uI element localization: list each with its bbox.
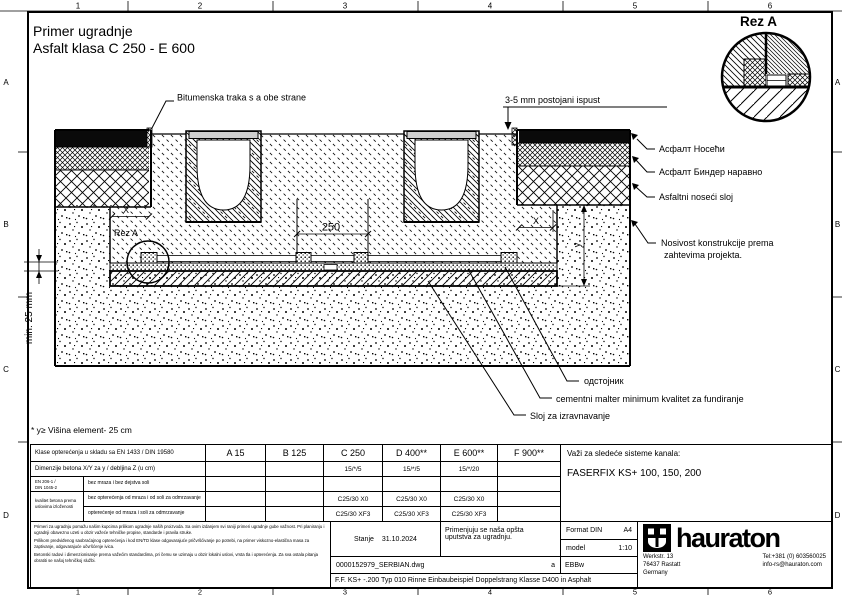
class-header-f900: F 900** [497, 444, 561, 462]
format-label: Format DIN [566, 527, 602, 534]
table-cell [497, 491, 561, 507]
ruler-col: 5 [633, 588, 637, 595]
address-line2: 76437 Rastatt [643, 561, 680, 569]
systems-panel: Važi za sledeće sisteme kanala: FASERFIX… [560, 444, 832, 522]
drawing-sheet: 1 2 3 4 5 6 1 2 3 4 5 6 A B C D A B C D … [0, 0, 842, 595]
status-label: Stanje [354, 536, 374, 543]
table-quality-label: kvalitet betona prema uslovima izloženos… [30, 491, 84, 522]
table-cell [497, 461, 561, 477]
scale-row: model 1:10 [560, 539, 638, 557]
table-row2-label: Dimenzije betona X/Y za y / debljina Z (… [30, 461, 206, 477]
asphalt-wearing-course [55, 130, 147, 147]
contact-email: info-rs@hauraton.com [762, 561, 826, 569]
table-row1-label: Klase opterećenja u skladu sa EN 1433 / … [30, 444, 206, 462]
quality-line1: kvalitet betona prema [35, 498, 79, 504]
table-cell [265, 491, 324, 507]
class-header-c250: C 250 [323, 444, 383, 462]
label-asphalt-base: Asfaltni noseći sloj [659, 192, 733, 202]
asphalt-base-layer [517, 166, 630, 205]
table-cell [497, 476, 561, 492]
detail-circle-rez-a: Rez A [722, 14, 810, 121]
label-malter: cementni malter minimum kvalitet za fund… [556, 394, 744, 404]
general-note-line1: Primenjuju se naša opšta [445, 527, 556, 534]
dim-y: y [572, 242, 582, 247]
scale-value: 1:10 [618, 545, 632, 552]
ruler-col: 1 [76, 2, 81, 11]
manufacturer-contact: Tel:+381 (0) 603560025 info-rs@hauraton.… [762, 553, 826, 577]
table-cell: 15/*/5 [382, 461, 441, 477]
label-odstojnik: одстојник [584, 376, 624, 386]
label-asphalt-wearing: Асфалт Носећи [659, 144, 725, 154]
ruler-col: 4 [488, 2, 493, 11]
format-value: A4 [623, 527, 632, 534]
ruler-col: 5 [633, 2, 638, 11]
table-cell [205, 461, 266, 477]
detail-title: Rez A [740, 14, 777, 29]
address-line1: Werkstr. 13 [643, 553, 680, 561]
scale-label: model [566, 545, 585, 552]
page-title-line2: Asfalt klasa C 250 - E 600 [33, 40, 195, 56]
page-title-line1: Primer ugradnje [33, 23, 133, 39]
ruler-row: B [835, 220, 840, 229]
table-cell: C25/30 X0 [382, 491, 441, 507]
norm-line2: DIN 1045-2 [35, 485, 79, 491]
channel-left [186, 131, 261, 222]
systems-value: FASERFIX KS+ 100, 150, 200 [567, 468, 825, 479]
class-header-a15: A 15 [205, 444, 266, 462]
table-cell [205, 506, 266, 522]
code-cell: EBBw [560, 556, 638, 574]
dim-250: 250 [322, 222, 340, 234]
table-norm-label: EN 206-1 / DIN 1045-2 [30, 476, 84, 492]
contact-phone: Tel:+381 (0) 603560025 [762, 553, 826, 561]
table-cell: C25/30 XF3 [323, 506, 383, 522]
ruler-row: D [3, 511, 9, 520]
class-header-e600: E 600** [440, 444, 498, 462]
label-ispust: 3-5 mm postojani ispust [505, 95, 601, 105]
address-line3: Germany [643, 569, 680, 577]
asphalt-binder-layer [517, 143, 630, 166]
ruler-col: 6 [768, 588, 772, 595]
ruler-row: C [835, 365, 841, 374]
asphalt-base-layer [55, 170, 149, 207]
table-cell [205, 491, 266, 507]
table-cell [497, 506, 561, 522]
table-cell [265, 461, 324, 477]
ruler-row: A [3, 78, 9, 87]
table-row4-label: bez opterećenja od mraza i od soli za od… [83, 491, 206, 507]
dim-x-left: X [123, 205, 129, 215]
table-cell [265, 476, 324, 492]
fine-print-p1: Primeri za ugradnju pomažu našim kupcima… [34, 524, 327, 535]
ruler-col: 2 [198, 588, 202, 595]
fine-print-p3: Betonski radovi i dimenzionisanje prema … [34, 552, 327, 563]
table-cell: C25/30 X0 [440, 491, 498, 507]
file-row: 0000152979_SERBIAN.dwg a [330, 556, 561, 574]
cross-section: 250 X X y min. 25 mm Rez A Bitumen [24, 93, 774, 436]
ruler-row: B [3, 220, 8, 229]
file-name: 0000152979_SERBIAN.dwg [336, 562, 424, 569]
table-cell [323, 476, 383, 492]
brand-wordmark: hauraton [676, 525, 780, 552]
general-note-line2: uputstva za ugradnju. [445, 534, 556, 541]
systems-heading: Važi za sledeće sisteme kanala: [567, 449, 825, 458]
hauraton-logo-icon [643, 524, 671, 552]
general-note: Primenjuju se naša opšta uputstva za ugr… [440, 521, 561, 557]
table-cell: 15/*/5 [323, 461, 383, 477]
table-cell: C25/30 XF3 [382, 506, 441, 522]
ruler-col: 1 [76, 588, 80, 595]
base-slab [110, 271, 557, 286]
manufacturer-block: hauraton Werkstr. 13 76437 Rastatt Germa… [637, 521, 832, 588]
manufacturer-address: Werkstr. 13 76437 Rastatt Germany [643, 553, 680, 577]
table-row3-label: bez mraza i bez dejstva soli [83, 476, 206, 492]
table-cell [205, 476, 266, 492]
description-row: F.F. KS+ -.200 Typ 010 Rinne Einbaubeisp… [330, 573, 638, 588]
channel-right [404, 131, 479, 222]
asphalt-wearing-course [519, 130, 630, 143]
grate-right [407, 132, 476, 139]
fine-print: Primeri za ugradnju pomažu našim kupcima… [30, 521, 331, 588]
table-cell: C25/30 X0 [323, 491, 383, 507]
quality-line2: uslovima izloženosti [35, 504, 79, 510]
table-cell: C25/30 XF3 [440, 506, 498, 522]
class-header-b125: B 125 [265, 444, 324, 462]
table-row5-label: opterećenje od mraza i soli za odmrzavan… [83, 506, 206, 522]
dim-min25: min. 25 mm [24, 292, 35, 344]
fine-print-p2: Prilikom predviđenog saobraćajnog optere… [34, 538, 327, 549]
dim-x-right: X [533, 216, 539, 226]
ruler-row: A [835, 78, 841, 87]
asphalt-binder-layer [55, 147, 149, 170]
label-nosivost-line2: zahtevima projekta. [664, 250, 742, 260]
asphalt-left [55, 128, 152, 207]
status-date: 31.10.2024 [382, 536, 417, 543]
label-nosivost-line1: Nosivost konstrukcije prema [661, 238, 774, 248]
footnote-y: * y≥ Višina element- 25 cm [31, 425, 132, 435]
ruler-col: 3 [343, 588, 347, 595]
ruler-col: 4 [488, 588, 492, 595]
ruler-col: 2 [198, 2, 203, 11]
ruler-row: D [835, 511, 841, 520]
encasement-concrete-hatch [110, 134, 557, 263]
class-header-d400: D 400** [382, 444, 441, 462]
rez-a-reference-label: Rez A [114, 228, 138, 238]
file-rev: a [551, 562, 555, 569]
table-cell [440, 476, 498, 492]
label-sloj: Sloj za izravnavanje [530, 411, 610, 421]
grate-left [189, 132, 258, 139]
label-asphalt-binder: Асфалт Биндер наравно [659, 167, 762, 177]
table-cell [265, 506, 324, 522]
format-row: Format DIN A4 [560, 521, 638, 540]
ruler-row: C [3, 365, 9, 374]
table-cell: 15/*/20 [440, 461, 498, 477]
ruler-col: 3 [343, 2, 348, 11]
status-row: Stanje 31.10.2024 [330, 521, 441, 557]
label-bitumen-tape: Bitumenska traka s a obe strane [177, 93, 306, 103]
ruler-col: 6 [768, 2, 773, 11]
table-cell [382, 476, 441, 492]
